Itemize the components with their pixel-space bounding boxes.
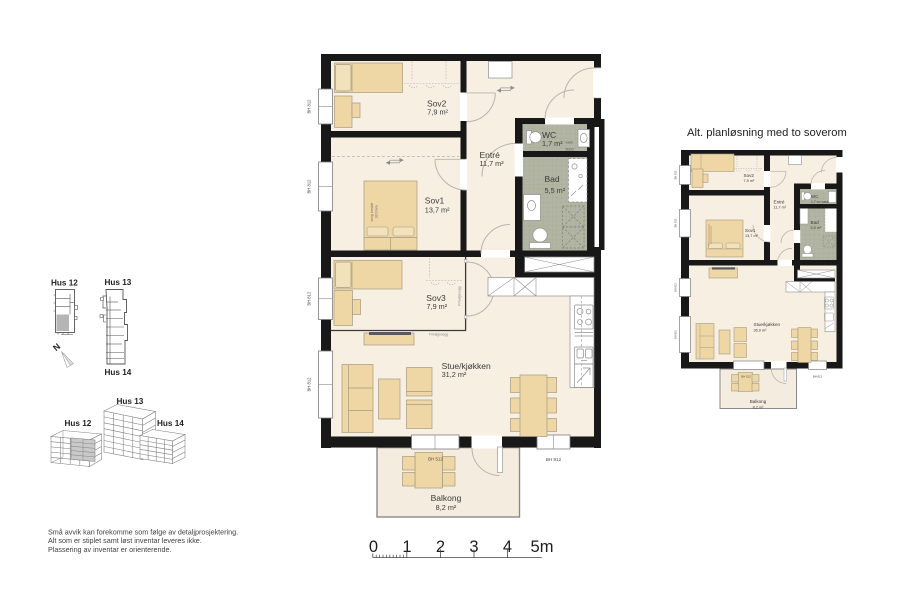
svg-text:vask: vask: [566, 141, 574, 145]
svg-text:BH 812: BH 812: [674, 218, 678, 227]
svg-text:BH 812: BH 812: [674, 283, 678, 292]
svg-text:Hus 14: Hus 14: [105, 368, 132, 377]
svg-text:Sov1: Sov1: [745, 228, 756, 233]
svg-text:31,2 m²: 31,2 m²: [442, 370, 467, 379]
svg-text:11,7 m²: 11,7 m²: [480, 159, 505, 168]
svg-text:Frivalgsvegg: Frivalgsvegg: [429, 332, 448, 336]
svg-text:BH 512: BH 512: [741, 375, 751, 379]
svg-text:Hus 13: Hus 13: [105, 278, 132, 287]
svg-text:Hus 12: Hus 12: [51, 279, 78, 288]
svg-text:WC: WC: [811, 194, 818, 199]
svg-text:Hus 12: Hus 12: [65, 419, 92, 428]
svg-text:11,7 m²: 11,7 m²: [774, 206, 787, 210]
svg-text:BH 812: BH 812: [674, 330, 678, 339]
svg-text:BH 812: BH 812: [813, 375, 823, 379]
svg-text:Hus 13: Hus 13: [117, 397, 144, 406]
svg-text:1,7 m² vask: 1,7 m² vask: [811, 200, 829, 204]
svg-text:BH 812: BH 812: [307, 99, 312, 114]
svg-text:Stue/kjøkken: Stue/kjøkken: [754, 322, 781, 327]
svg-text:BH 812: BH 812: [307, 291, 312, 306]
svg-text:seng bredde: seng bredde: [370, 202, 374, 221]
svg-text:0: 0: [369, 538, 378, 556]
svg-text:7,9 m²: 7,9 m²: [427, 302, 448, 311]
svg-text:Sov2: Sov2: [744, 173, 755, 178]
svg-text:Balkong: Balkong: [431, 493, 462, 503]
svg-text:BH 812: BH 812: [307, 179, 312, 194]
svg-text:5,5 m²: 5,5 m²: [811, 226, 822, 230]
svg-text:Bad: Bad: [811, 220, 820, 225]
svg-text:Hus 14: Hus 14: [157, 419, 184, 428]
svg-text:50cm: 50cm: [566, 147, 575, 151]
svg-text:BH 512: BH 512: [428, 457, 443, 462]
svg-text:5,5 m²: 5,5 m²: [545, 186, 566, 195]
svg-text:Entré: Entré: [774, 200, 785, 205]
svg-text:7,9 m²: 7,9 m²: [744, 179, 755, 183]
svg-text:BH 812: BH 812: [674, 170, 678, 179]
svg-text:Sov1: Sov1: [425, 196, 445, 206]
svg-text:Små avvik kan forekomme som fø: Små avvik kan forekomme som følge av det…: [48, 528, 238, 537]
svg-text:36,9 m²: 36,9 m²: [754, 329, 768, 333]
svg-text:Balkong: Balkong: [750, 399, 767, 404]
svg-text:1,7 m²: 1,7 m²: [542, 139, 563, 148]
svg-text:Frivalgsvegg: Frivalgsvegg: [458, 286, 462, 305]
svg-text:8,2 m²: 8,2 m²: [753, 406, 764, 410]
svg-text:13,7 m²: 13,7 m²: [425, 206, 450, 215]
svg-text:8,2 m²: 8,2 m²: [436, 503, 457, 512]
svg-text:1600mm: 1600mm: [375, 205, 379, 218]
svg-text:Plassering av inventar er orie: Plassering av inventar er orienterende.: [48, 545, 171, 554]
svg-text:13,7 m²: 13,7 m²: [745, 234, 759, 238]
svg-text:7,9 m²: 7,9 m²: [427, 108, 448, 117]
svg-text:BH 812: BH 812: [546, 457, 562, 462]
svg-text:Alt som er stiplet samt løst i: Alt som er stiplet samt løst inventar le…: [48, 536, 202, 545]
svg-text:BH 812: BH 812: [307, 377, 312, 392]
svg-text:Bad: Bad: [545, 174, 560, 184]
svg-text:Alt. planløsning med to sovero: Alt. planløsning med to soverom: [687, 127, 847, 139]
svg-text:5m: 5m: [531, 538, 554, 556]
